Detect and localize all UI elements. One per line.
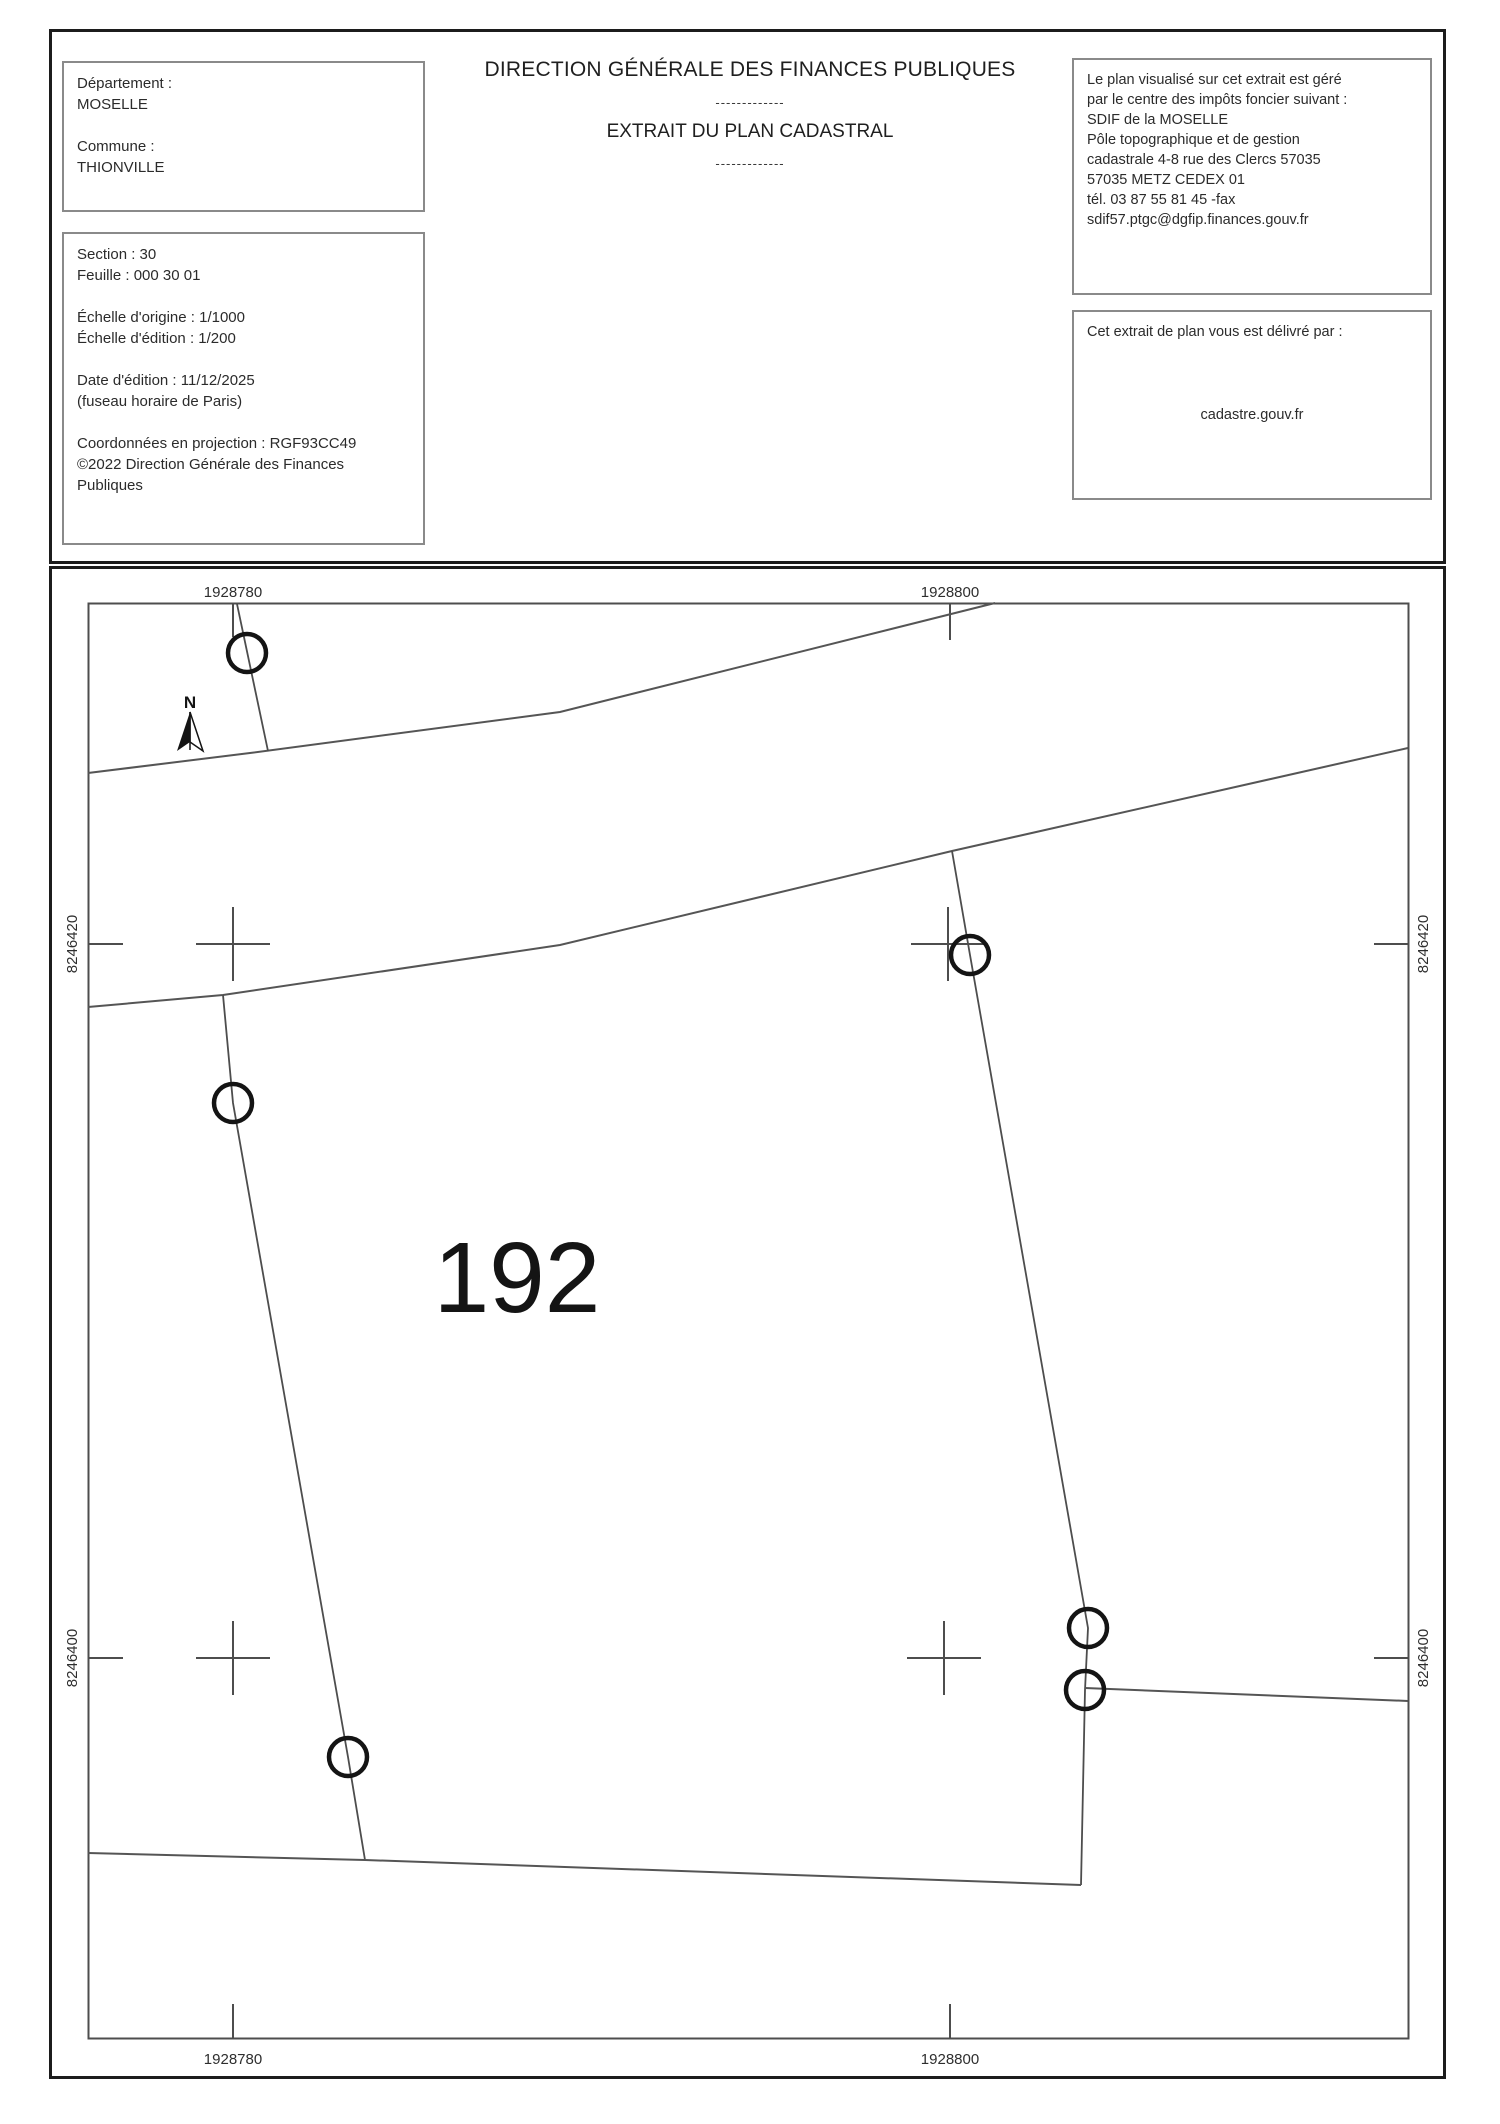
spacer-line bbox=[77, 286, 410, 307]
spacer-line bbox=[77, 412, 410, 433]
commune-box: Département : MOSELLE Commune : THIONVIL… bbox=[62, 61, 425, 212]
title-block: DIRECTION GÉNÉRALE DES FINANCES PUBLIQUE… bbox=[430, 58, 1070, 171]
commune-label: Commune : bbox=[77, 136, 410, 157]
spacer-line bbox=[77, 115, 410, 136]
header-section: Département : MOSELLE Commune : THIONVIL… bbox=[49, 29, 1446, 564]
tax-center-box: Le plan visualisé sur cet extrait est gé… bbox=[1072, 58, 1432, 295]
departement-value: MOSELLE bbox=[77, 94, 410, 115]
tax-center-line: Pôle topographique et de gestion bbox=[1087, 130, 1417, 150]
tax-center-line: tél. 03 87 55 81 45 -fax bbox=[1087, 190, 1417, 210]
scale-edition-line: Échelle d'édition : 1/200 bbox=[77, 328, 410, 349]
map-section bbox=[49, 566, 1446, 2079]
delivery-provider: cadastre.gouv.fr bbox=[1074, 407, 1430, 423]
copyright-line: ©2022 Direction Générale des Finances bbox=[77, 454, 410, 475]
feuille-line: Feuille : 000 30 01 bbox=[77, 265, 410, 286]
spacer-line bbox=[77, 349, 410, 370]
tax-center-line: Le plan visualisé sur cet extrait est gé… bbox=[1087, 70, 1417, 90]
timezone-line: (fuseau horaire de Paris) bbox=[77, 391, 410, 412]
title-separator: ------------- bbox=[430, 95, 1070, 110]
tax-center-line: par le centre des impôts foncier suivant… bbox=[1087, 90, 1417, 110]
projection-line: Coordonnées en projection : RGF93CC49 bbox=[77, 433, 410, 454]
commune-value: THIONVILLE bbox=[77, 157, 410, 178]
delivery-title: Cet extrait de plan vous est délivré par… bbox=[1087, 322, 1417, 343]
departement-label: Département : bbox=[77, 73, 410, 94]
tax-center-line: 57035 METZ CEDEX 01 bbox=[1087, 170, 1417, 190]
sheet-info-box: Section : 30 Feuille : 000 30 01 Échelle… bbox=[62, 232, 425, 545]
title-separator: ------------- bbox=[430, 156, 1070, 171]
section-line: Section : 30 bbox=[77, 244, 410, 265]
tax-center-email: sdif57.ptgc@dgfip.finances.gouv.fr bbox=[1087, 210, 1417, 230]
page-subtitle: EXTRAIT DU PLAN CADASTRAL bbox=[430, 121, 1070, 143]
tax-center-line: cadastrale 4-8 rue des Clercs 57035 bbox=[1087, 150, 1417, 170]
delivery-box: Cet extrait de plan vous est délivré par… bbox=[1072, 310, 1432, 500]
edition-date-line: Date d'édition : 11/12/2025 bbox=[77, 370, 410, 391]
tax-center-line: SDIF de la MOSELLE bbox=[1087, 110, 1417, 130]
page-title: DIRECTION GÉNÉRALE DES FINANCES PUBLIQUE… bbox=[430, 58, 1070, 82]
scale-origin-line: Échelle d'origine : 1/1000 bbox=[77, 307, 410, 328]
copyright-line2: Publiques bbox=[77, 475, 410, 496]
